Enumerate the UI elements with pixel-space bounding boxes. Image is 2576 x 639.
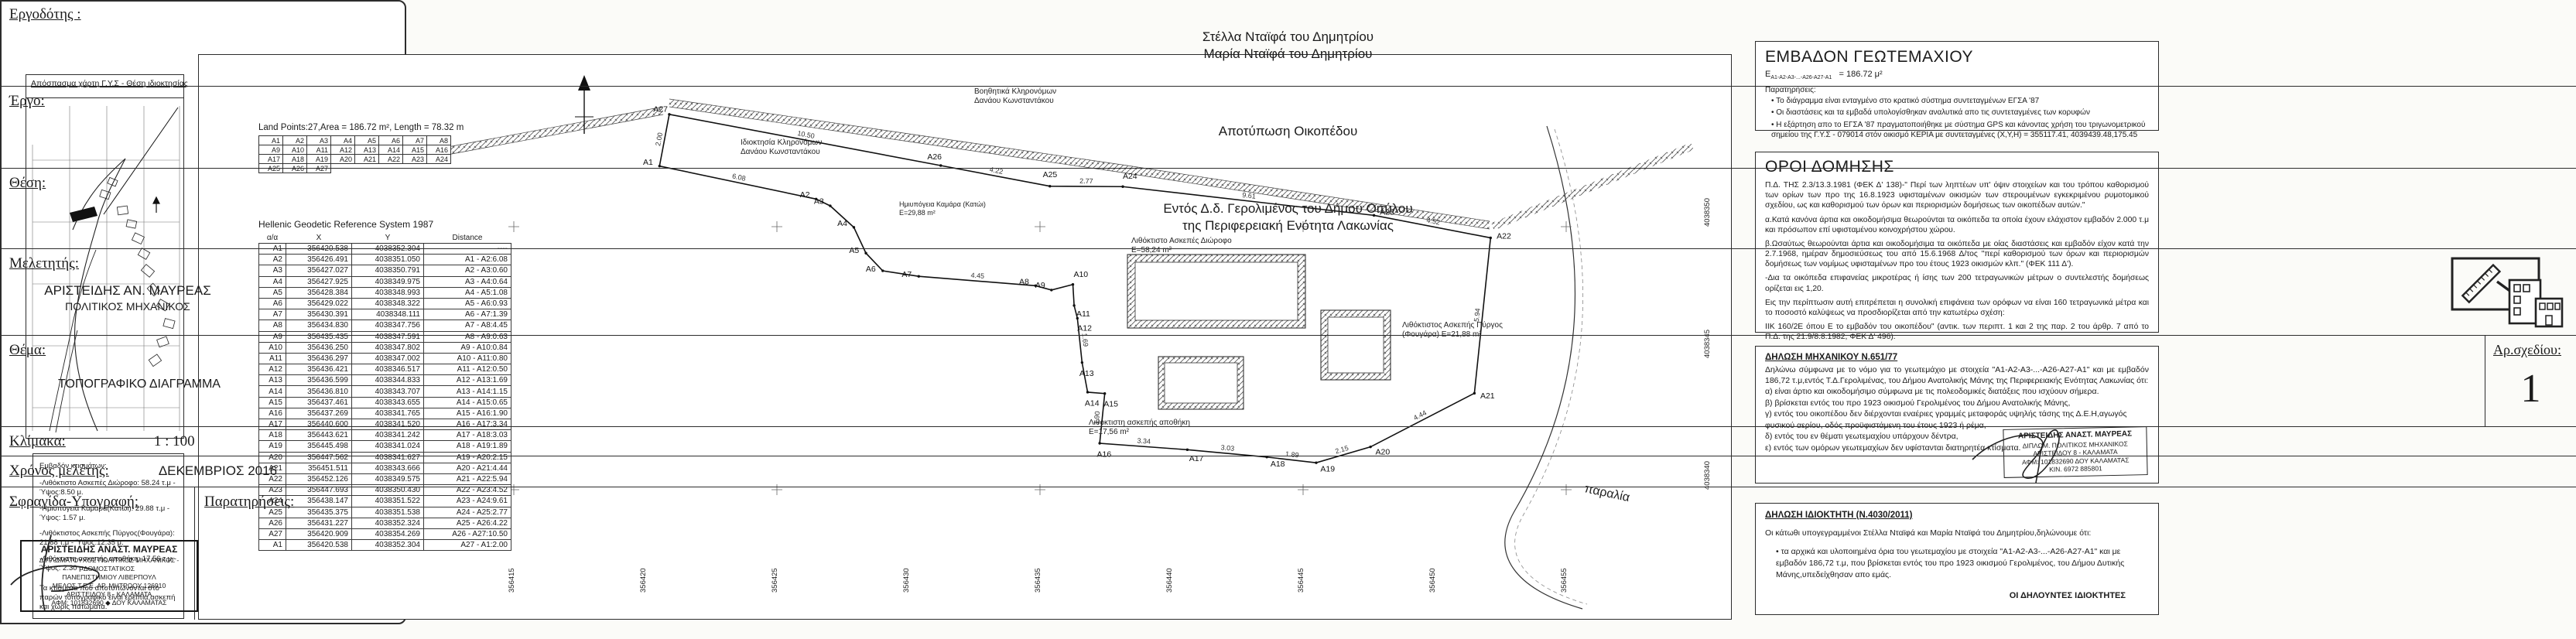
location-label: Θέση: bbox=[0, 169, 2576, 192]
remarks-cell: Παρατηρήσεις: bbox=[195, 487, 2576, 620]
date-label: Χρόνος μελέτης: bbox=[0, 456, 109, 480]
title-block: Εργοδότης : Στέλλα Νταϊφά του Δημητρίου … bbox=[0, 0, 406, 624]
scale-value: 1 : 100 bbox=[154, 433, 195, 450]
client-name-1: Στέλλα Νταϊφά του Δημητρίου bbox=[0, 29, 2576, 45]
project-row: Έργο: Αποτύπωση Οικοπέδου bbox=[0, 87, 2576, 169]
subject-row: Θέμα: ΤΟΠΟΓΡΑΦΙΚΟ ΔΙΑΓΡΑΜΜΑ Αρ.σχεδίου: … bbox=[0, 336, 2576, 427]
surveyor-name: ΑΡΙΣΤΕΙΔΗΣ ΑΝ. ΜΑΥΡΕΑΣ bbox=[0, 283, 255, 299]
location-row: Θέση: Εντός Δ.δ. Γερολιμένος του Δήμου Ο… bbox=[0, 169, 2576, 249]
subject-value: ΤΟΠΟΓΡΑΦΙΚΟ ΔΙΑΓΡΑΜΜΑ bbox=[0, 378, 279, 391]
title-block-stamp: ΑΡΙΣΤΕΙΔΗΣ ΑΝΑΣΤ. ΜΑΥΡΕΑΣ ΔΙΠΛΩΜΑΤΟΥΧΟΣ … bbox=[20, 540, 198, 612]
project-value: Αποτύπωση Οικοπέδου bbox=[0, 124, 2576, 139]
remarks-label: Παρατηρήσεις: bbox=[195, 487, 2576, 511]
drawing-number-label: Αρ.σχεδίου: bbox=[2485, 336, 2576, 358]
date-row: Χρόνος μελέτης: ΔΕΚΕΜΒΡΙΟΣ 2016 bbox=[0, 456, 2576, 487]
topographic-sheet: Απόσπασμα χάρτη Γ.Υ.Σ - Θέση ιδιοκτησίας bbox=[0, 0, 2576, 639]
scale-row: Κλίμακα: 1 : 100 bbox=[0, 427, 2576, 456]
stamp-signature-row: Σφραγίδα-Υπογραφή: ΑΡΙΣΤΕΙΔΗΣ ΑΝΑΣΤ. ΜΑΥ… bbox=[0, 487, 2576, 620]
client-label: Εργοδότης : bbox=[0, 0, 2576, 23]
drawing-number-value: 1 bbox=[2485, 366, 2576, 412]
location-line-1: Εντός Δ.δ. Γερολιμένος του Δήμου Οιτύλου bbox=[0, 201, 2576, 217]
location-line-2: της Περιφερειακή Ενότητα Λακωνίας bbox=[0, 218, 2576, 234]
date-value: ΔΕΚΕΜΒΡΙΟΣ 2016 bbox=[159, 463, 277, 479]
surveyor-logo-icon bbox=[2449, 254, 2565, 331]
surveyor-role: ΠΟΛΙΤΙΚΟΣ ΜΗΧΑΝΙΚΟΣ bbox=[0, 300, 255, 313]
stamp-signature-label: Σφραγίδα-Υπογραφή: bbox=[0, 487, 194, 511]
scale-label: Κλίμακα: bbox=[0, 427, 66, 450]
subject-label: Θέμα: bbox=[0, 336, 2576, 359]
project-label: Έργο: bbox=[0, 87, 2576, 110]
surveyor-row: Μελετητής: ΑΡΙΣΤΕΙΔΗΣ ΑΝ. ΜΑΥΡΕΑΣ ΠΟΛΙΤΙ… bbox=[0, 249, 2576, 336]
surveyor-label: Μελετητής: bbox=[0, 249, 2576, 272]
client-row: Εργοδότης : Στέλλα Νταϊφά του Δημητρίου … bbox=[0, 0, 2576, 87]
stamp-signature-cell: Σφραγίδα-Υπογραφή: ΑΡΙΣΤΕΙΔΗΣ ΑΝΑΣΤ. ΜΑΥ… bbox=[0, 487, 195, 620]
drawing-number-box: Αρ.σχεδίου: 1 bbox=[2485, 336, 2576, 426]
client-name-2: Μαρία Νταϊφά του Δημητρίου bbox=[0, 46, 2576, 62]
